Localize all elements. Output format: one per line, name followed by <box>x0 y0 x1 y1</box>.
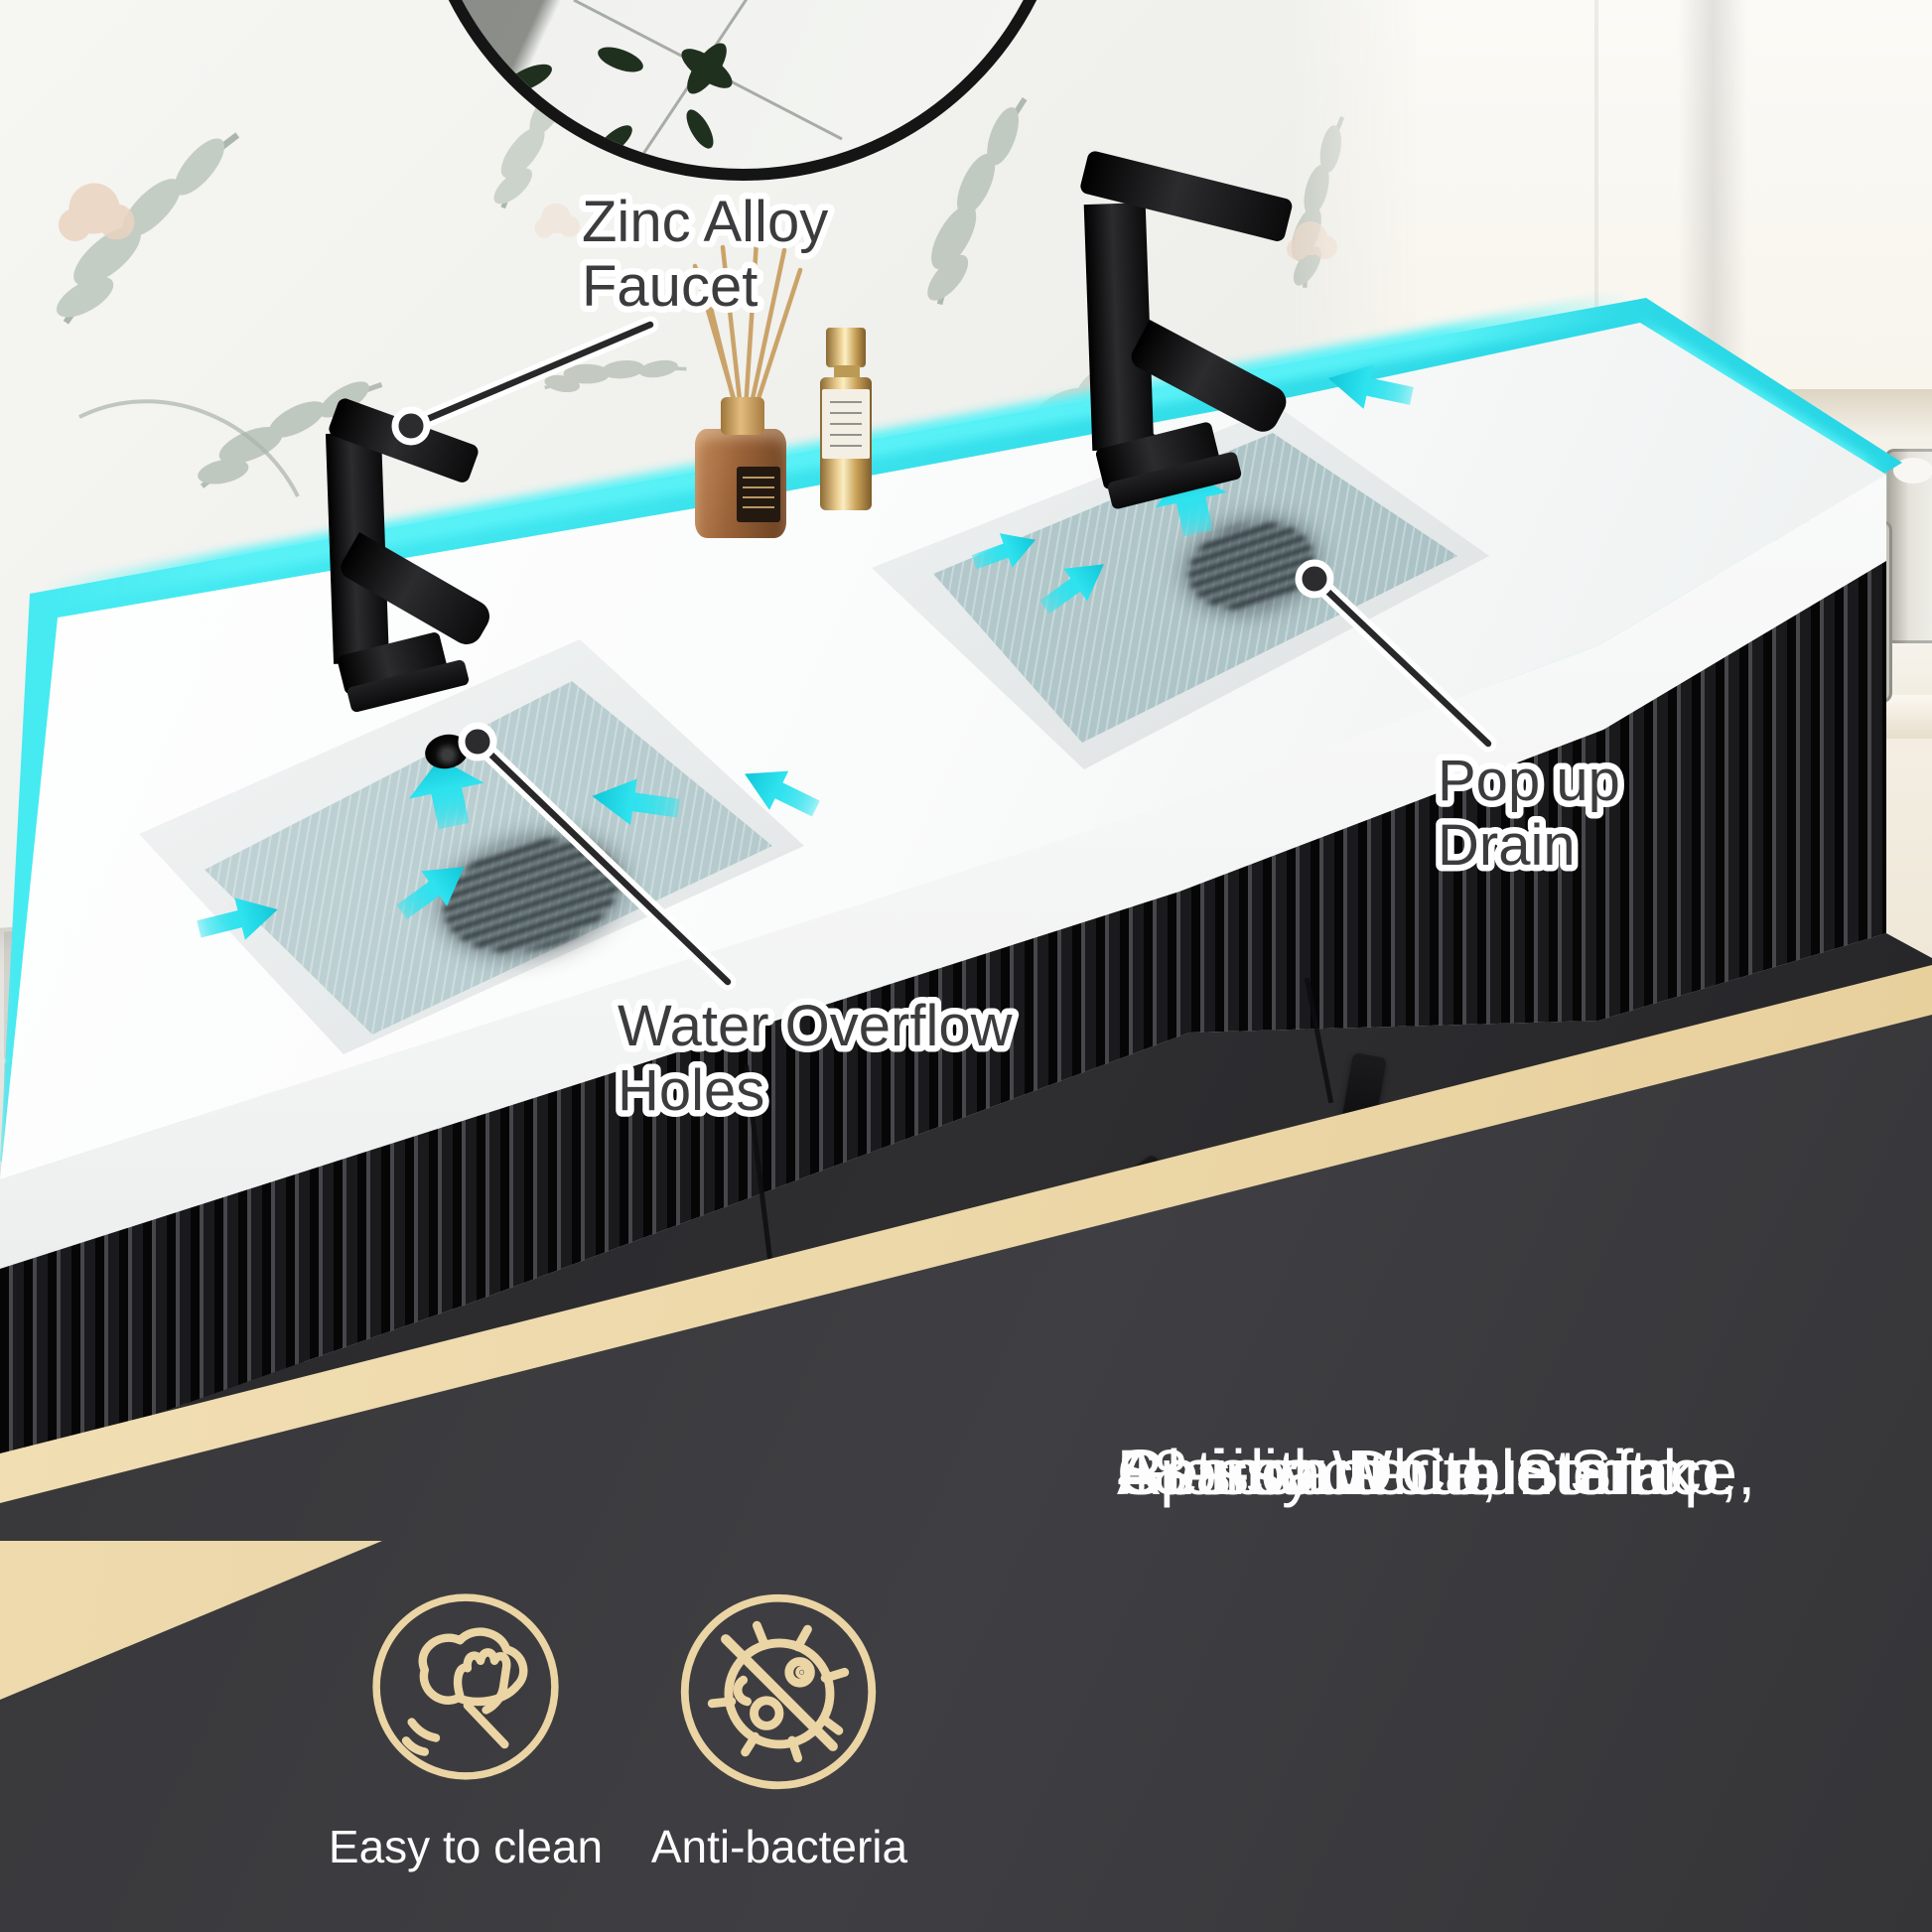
feature-label-anti-bacteria: Anti-bacteria <box>630 1819 928 1874</box>
diffuser-cap <box>721 397 764 435</box>
no-bacteria-icon <box>671 1585 886 1799</box>
flow-arrow <box>1322 352 1417 423</box>
faucet-body <box>1084 203 1155 451</box>
gold-bottle-label <box>822 389 870 459</box>
diffuser-reeds <box>0 0 894 447</box>
diffuser-label <box>737 467 780 522</box>
wipe-hand-icon <box>363 1585 568 1789</box>
gold-bottle-cap <box>826 328 866 367</box>
headline-line: Resistant <box>1117 1432 1386 1513</box>
feature-label-easy-clean: Easy to clean <box>317 1819 615 1874</box>
product-infographic: Easy to clean Anti-bacteria 48-inch Doub… <box>0 0 1932 1932</box>
